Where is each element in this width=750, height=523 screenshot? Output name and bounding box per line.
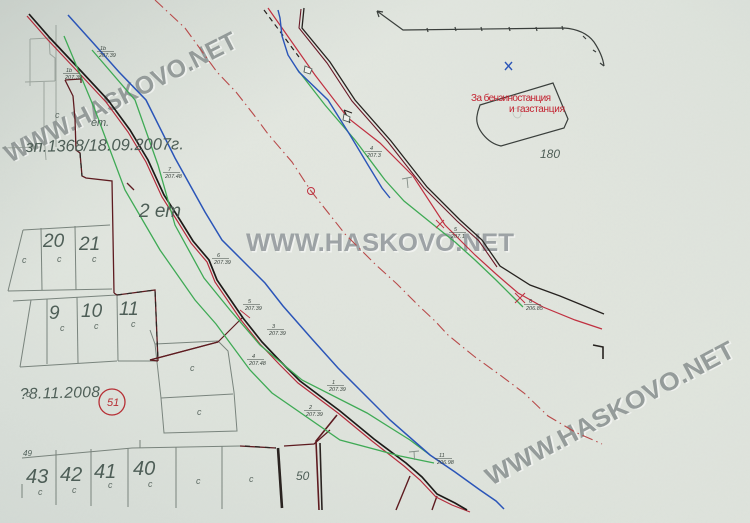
svg-text:41: 41 <box>94 461 116 483</box>
svg-text:207.39: 207.39 <box>268 331 286 337</box>
svg-text:c: c <box>197 407 202 417</box>
svg-text:206.85: 206.85 <box>525 306 544 312</box>
svg-text:207.39: 207.39 <box>244 306 262 312</box>
svg-text:ет.: ет. <box>91 117 109 129</box>
svg-text:49: 49 <box>23 449 32 458</box>
svg-text:c: c <box>249 474 254 484</box>
svg-text:2: 2 <box>308 405 312 411</box>
svg-text:c: c <box>57 254 62 264</box>
svg-text:11: 11 <box>119 299 139 320</box>
svg-text:c: c <box>26 389 31 399</box>
svg-text:207.39: 207.39 <box>305 412 323 418</box>
svg-text:и газстанция: и газстанция <box>509 104 565 115</box>
svg-text:c: c <box>55 110 60 120</box>
svg-text:43: 43 <box>26 466 48 488</box>
svg-text:40: 40 <box>133 458 155 480</box>
svg-text:c: c <box>60 323 65 333</box>
svg-text:20: 20 <box>42 231 65 252</box>
svg-text:c: c <box>196 476 201 486</box>
svg-text:180: 180 <box>540 147 560 161</box>
svg-text:42: 42 <box>60 464 82 486</box>
svg-text:207.48: 207.48 <box>164 174 183 180</box>
svg-text:1: 1 <box>332 380 335 386</box>
svg-text:207.1: 207.1 <box>450 234 465 240</box>
svg-text:207.39: 207.39 <box>328 387 346 393</box>
svg-text:c: c <box>94 321 99 331</box>
svg-text:c: c <box>131 319 136 329</box>
svg-text:За бензиностанция: За бензиностанция <box>471 92 551 104</box>
svg-text:207.39: 207.39 <box>213 260 231 266</box>
svg-text:c: c <box>108 480 113 490</box>
svg-text:207.48: 207.48 <box>248 361 267 367</box>
svg-text:1b: 1b <box>100 46 106 52</box>
svg-text:4: 4 <box>370 146 373 152</box>
svg-text:c: c <box>190 363 195 373</box>
svg-text:c: c <box>38 487 43 497</box>
svg-text:10: 10 <box>81 301 103 322</box>
svg-text:11: 11 <box>439 453 445 459</box>
svg-text:206.98: 206.98 <box>436 460 455 466</box>
svg-text:50: 50 <box>296 469 310 483</box>
svg-text:c: c <box>148 479 153 489</box>
svg-text:207.39: 207.39 <box>64 75 82 81</box>
svg-text:2 ет: 2 ет <box>138 201 181 222</box>
svg-text:?8.11.2008: ?8.11.2008 <box>20 384 101 403</box>
svg-text:51: 51 <box>107 397 119 409</box>
svg-text:21: 21 <box>78 234 100 255</box>
svg-text:c: c <box>22 255 27 265</box>
svg-text:c: c <box>92 254 97 264</box>
svg-text:зп.1368/18.09.2007г.: зп.1368/18.09.2007г. <box>25 135 184 156</box>
svg-text:4: 4 <box>252 354 255 360</box>
svg-text:207.3: 207.3 <box>366 153 382 159</box>
svg-text:207.39: 207.39 <box>98 53 116 59</box>
svg-text:1b: 1b <box>66 68 72 74</box>
svg-text:9: 9 <box>49 303 60 324</box>
svg-text:c: c <box>72 485 77 495</box>
